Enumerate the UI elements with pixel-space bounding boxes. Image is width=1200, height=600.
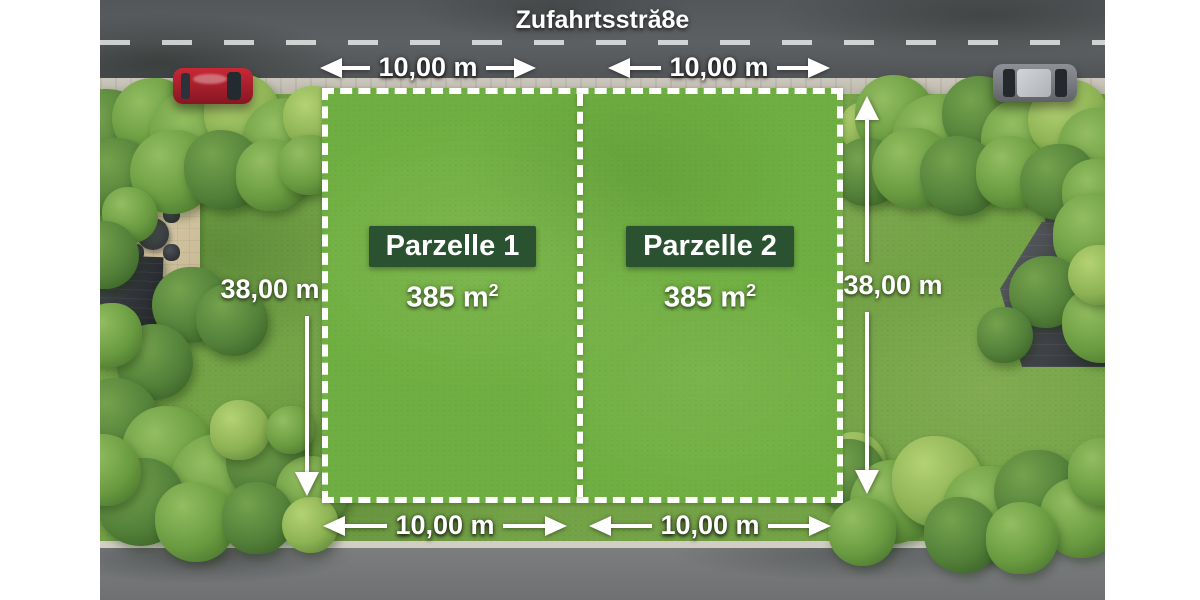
arrowhead-down-icon: [855, 470, 879, 494]
arrow-line: [865, 312, 869, 472]
dimension-label: 10,00 m: [387, 510, 502, 541]
arrowhead-down-icon: [295, 472, 319, 496]
arrow-line: [630, 66, 661, 70]
parcel-2-area: 385 m2: [664, 280, 756, 315]
arrow-line: [486, 66, 514, 70]
aerial-photo: Parzelle 1 385 m2 Parzelle 2 385 m2 Zufa…: [100, 0, 1105, 600]
dimension-label: 10,00 m: [652, 510, 767, 541]
dimension-top-parcel2: 10,00 m: [608, 52, 830, 83]
area-value: 385 m: [406, 282, 488, 314]
arrow-line: [345, 524, 387, 528]
tree: [986, 502, 1058, 574]
arrowhead-right-icon: [545, 516, 567, 536]
car-window: [181, 73, 190, 99]
parked-car-red: [173, 68, 253, 104]
arrow-line: [503, 524, 545, 528]
arrowhead-right-icon: [808, 58, 830, 78]
car-window: [1003, 69, 1015, 97]
car-roof-highlight: [193, 74, 227, 84]
parcel-1-label: Parzelle 1: [369, 226, 537, 267]
tree: [977, 307, 1033, 363]
parked-car-silver: [993, 64, 1077, 102]
parcel-1: Parzelle 1 385 m2: [328, 226, 577, 315]
tree: [210, 400, 270, 460]
parcel-2-label: Parzelle 2: [626, 226, 794, 267]
street-name: Zufahrtsstră8e: [100, 6, 1105, 35]
dimension-label: 10,00 m: [370, 52, 485, 83]
arrow-line: [611, 524, 652, 528]
car-windshield: [227, 72, 241, 100]
arrowhead-left-icon: [320, 58, 342, 78]
dimension-bottom-parcel1: 10,00 m: [323, 510, 567, 541]
arrowhead-right-icon: [809, 516, 831, 536]
arrow-line: [777, 66, 808, 70]
dimension-left-label: 38,00 m: [220, 274, 320, 305]
tree: [828, 498, 896, 566]
dimension-bottom-parcel2: 10,00 m: [589, 510, 831, 541]
arrowhead-left-icon: [323, 516, 345, 536]
arrowhead-right-icon: [514, 58, 536, 78]
arrowhead-left-icon: [589, 516, 611, 536]
arrowhead-left-icon: [608, 58, 630, 78]
arrowhead-up-icon: [855, 96, 879, 120]
dimension-top-parcel1: 10,00 m: [320, 52, 536, 83]
arrow-line: [305, 316, 309, 474]
dimension-label: 10,00 m: [661, 52, 776, 83]
parcel-2: Parzelle 2 385 m2: [583, 226, 837, 315]
dimension-right-label: 38,00 m: [833, 270, 953, 301]
area-exponent: 2: [489, 280, 499, 300]
area-exponent: 2: [746, 280, 756, 300]
car-window: [1055, 69, 1067, 97]
car-roof: [1017, 69, 1051, 97]
arrow-line: [342, 66, 370, 70]
arrow-line: [768, 524, 809, 528]
arrow-line: [865, 120, 869, 262]
parcel-1-area: 385 m2: [406, 280, 498, 315]
area-value: 385 m: [664, 282, 746, 314]
